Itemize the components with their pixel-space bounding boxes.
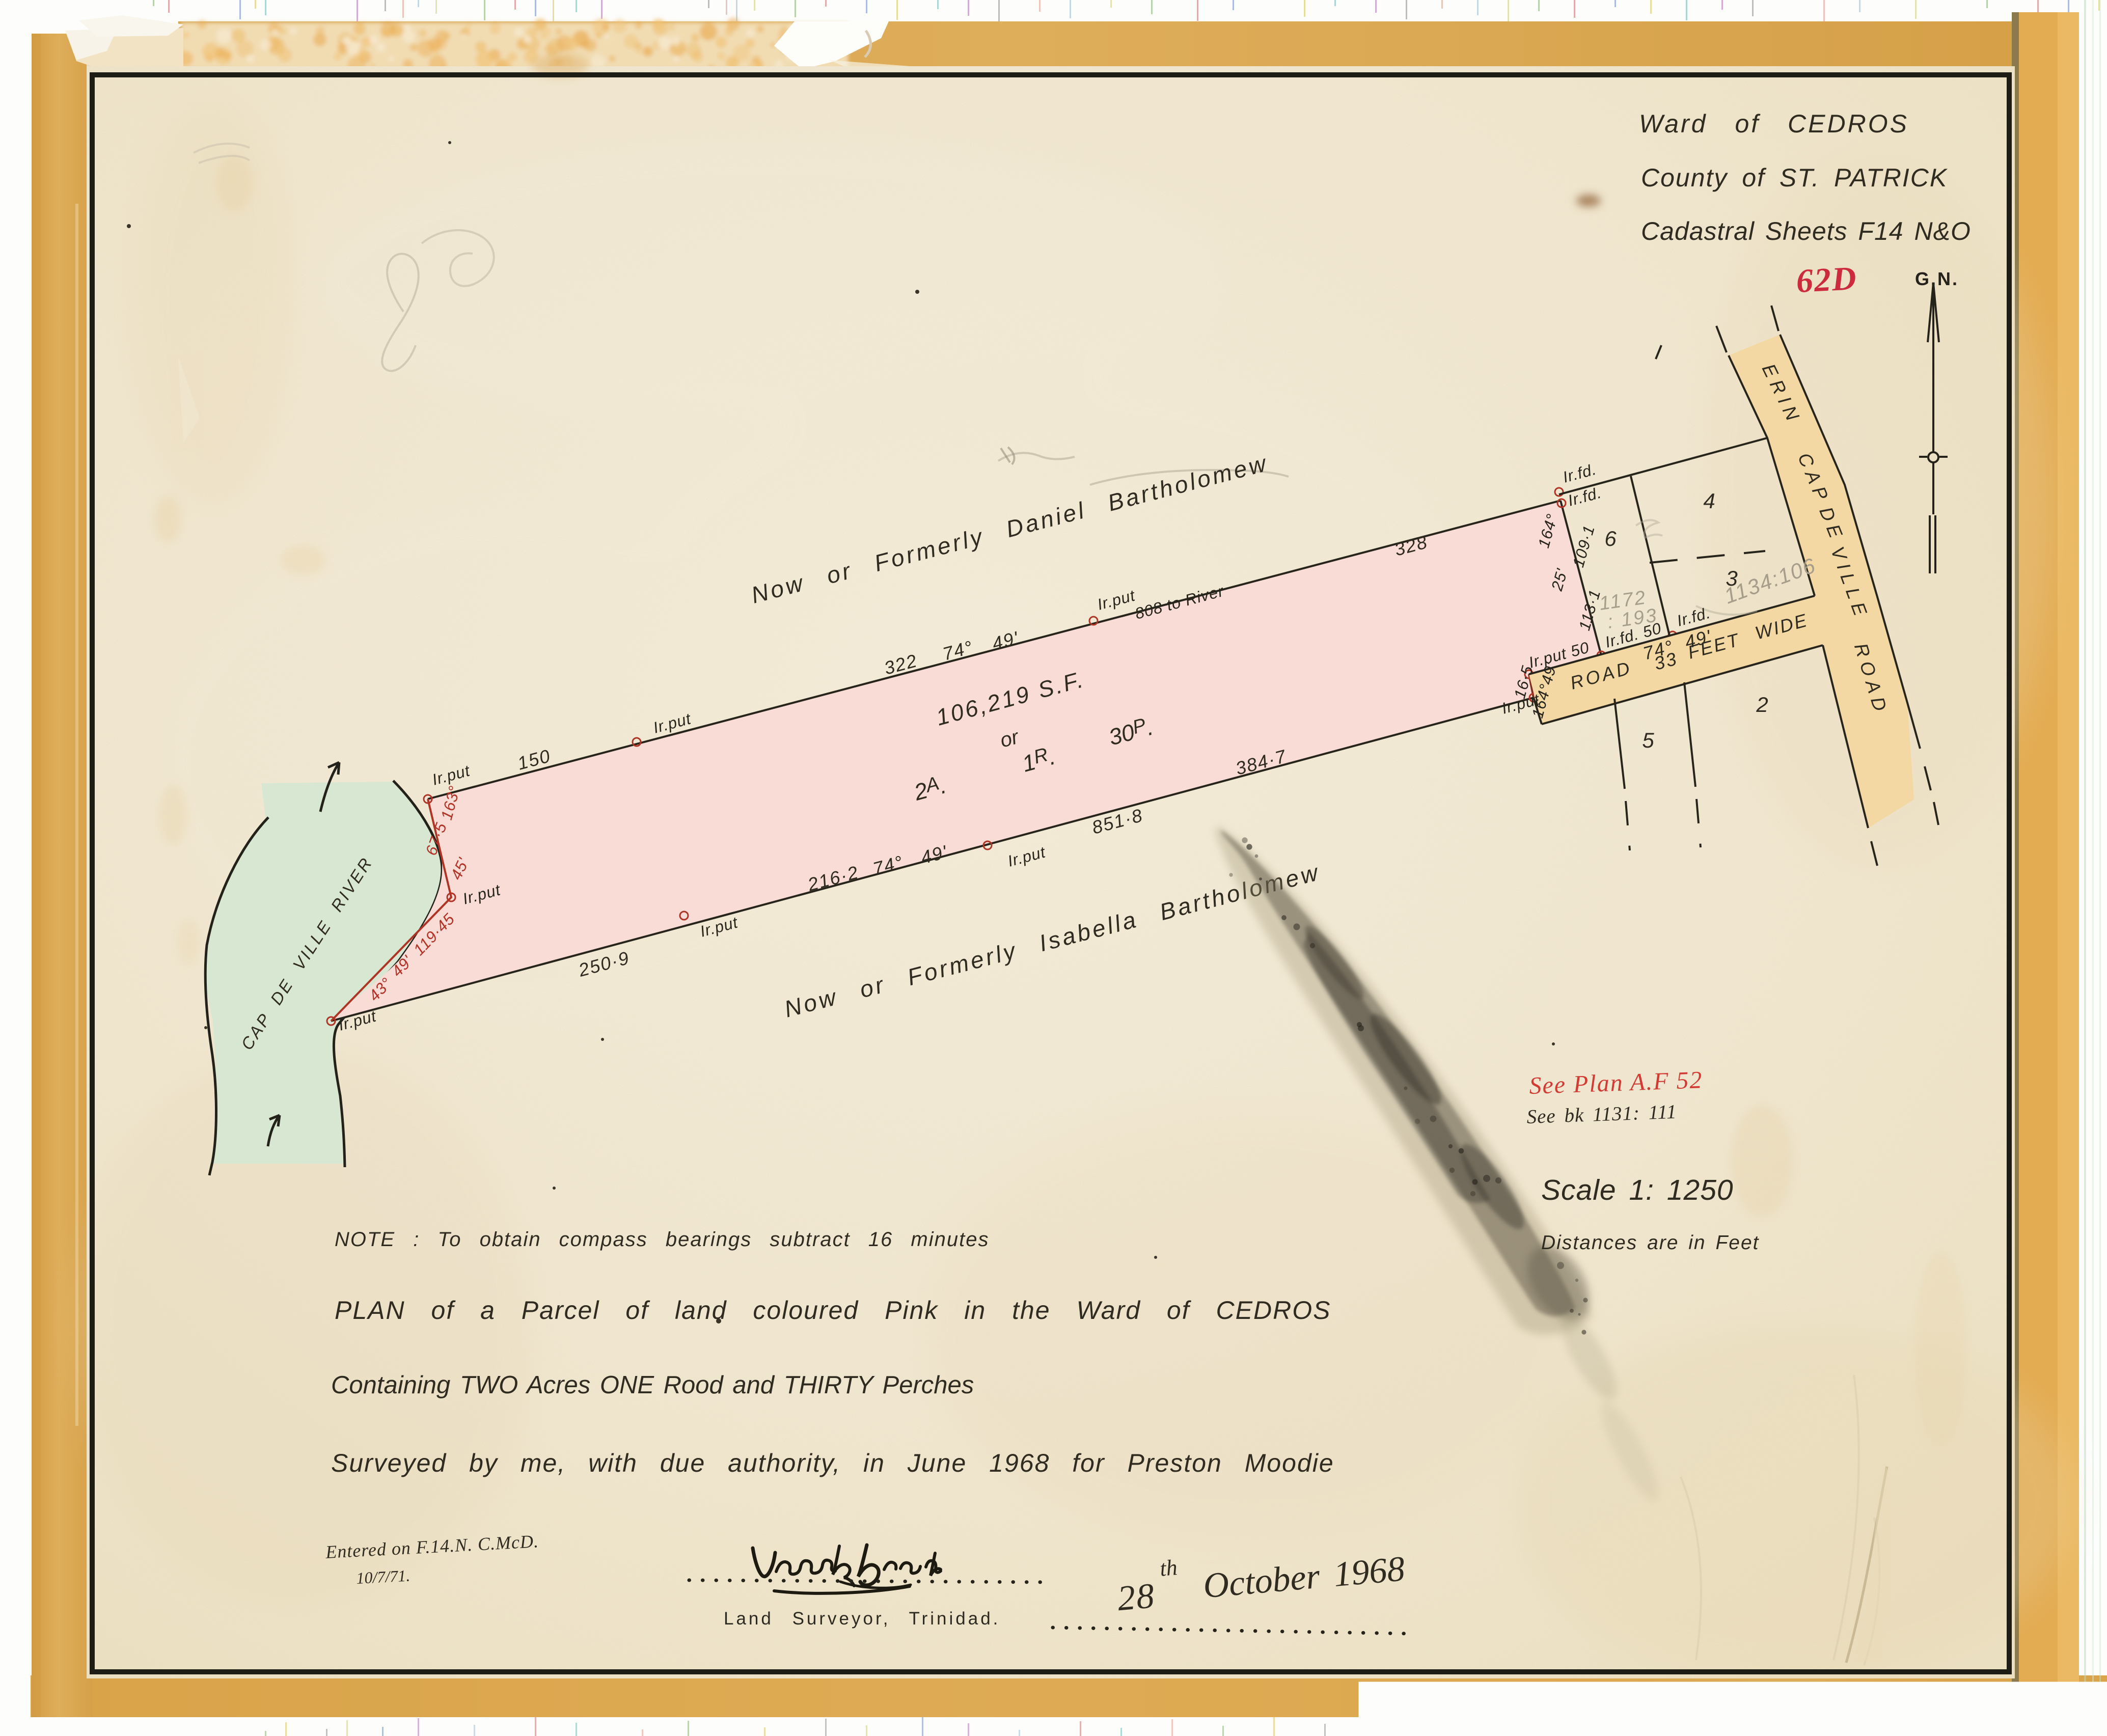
svg-text:6: 6 [1604,527,1617,550]
svg-text:County of ST. PATRICK: County of ST. PATRICK [1641,163,1948,192]
svg-text:NOTE : To obtain compass: NOTE : To obtain compass bearings subtra… [335,1228,989,1251]
svg-text:62D: 62D [1795,260,1858,300]
svg-text:2: 2 [1756,693,1768,717]
svg-text:4: 4 [1703,489,1715,513]
svg-text:G.N.: G.N. [1915,268,1959,289]
svg-text:Land Surveyor, Trinidad.: Land Surveyor, Trinidad. [724,1609,1000,1629]
svg-text:Scale 1: 1250: Scale 1: 1250 [1541,1174,1734,1206]
svg-text:th: th [1159,1555,1178,1581]
svg-text:28: 28 [1116,1576,1157,1618]
svg-text:PLAN of a Parcel of land: PLAN of a Parcel of land coloured Pink i… [335,1296,1331,1325]
svg-text:Cadastral Sheets F14 N&O: Cadastral Sheets F14 N&O [1641,217,1971,245]
svg-text:Containing TWO Acres ONE R: Containing TWO Acres ONE Rood and THIRTY… [331,1371,974,1399]
svg-text:10/7/71.: 10/7/71. [355,1566,411,1587]
svg-text:5: 5 [1642,728,1654,752]
svg-text:Surveyed by me, with due: Surveyed by me, with due authority, in J… [331,1449,1334,1477]
svg-text:Distances are in Feet: Distances are in Feet [1541,1232,1760,1254]
svg-text:Ward of CEDROS: Ward of CEDROS [1639,109,1909,138]
